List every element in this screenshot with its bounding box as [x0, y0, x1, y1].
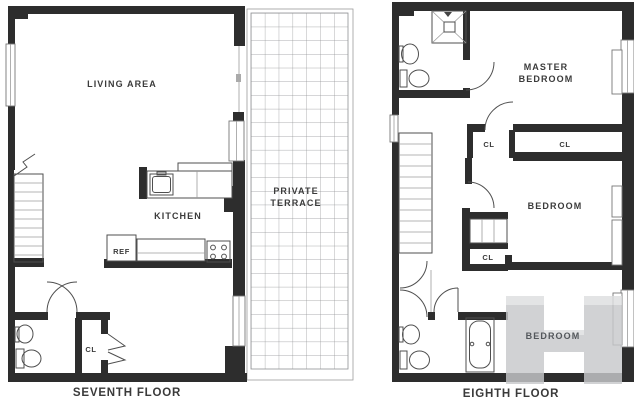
closet-label: CL: [559, 140, 570, 149]
stove: [207, 241, 230, 262]
eighth-floor-staircase: [399, 133, 432, 317]
toilet-fixture: [400, 351, 407, 369]
door-arc: [400, 261, 427, 288]
door-arc: [400, 290, 427, 317]
kitchen-label: KITCHEN: [154, 211, 202, 221]
seventh-floor-bathroom: [15, 325, 41, 368]
door-arc: [485, 102, 513, 130]
seventh-floor-plan: LIVING AREA KITCHEN REF CL PRIVATE TERRA…: [6, 6, 353, 399]
bedroom-label: BEDROOM: [528, 201, 583, 211]
closet-label: CL: [85, 345, 96, 354]
window-sill: [612, 50, 622, 94]
tub-tap: [470, 342, 474, 346]
shower-drain: [444, 22, 455, 32]
window-sill: [612, 220, 622, 265]
sink-fixture: [403, 325, 420, 344]
closet-label: CL: [483, 140, 494, 149]
toilet-fixture: [410, 351, 430, 369]
seventh-floor-staircase: [14, 154, 43, 262]
tub-tap: [486, 342, 490, 346]
door-handle: [236, 74, 241, 82]
closet-bifold-doors: [108, 334, 125, 364]
stair-break-line: [14, 154, 35, 176]
shelf-unit: [470, 219, 507, 243]
door-arc: [466, 62, 494, 90]
kitchen-counter: [137, 239, 205, 261]
door-arc: [434, 288, 458, 312]
burner: [222, 254, 227, 259]
burner: [211, 254, 216, 259]
entry-door-arcs: [47, 282, 77, 312]
window-sill: [612, 186, 622, 217]
master-bedroom-label-line1: MASTER: [524, 62, 569, 72]
floor-plan-image: LIVING AREA KITCHEN REF CL PRIVATE TERRA…: [0, 0, 634, 400]
door-arc: [468, 182, 494, 208]
eighth-floor-plan: MASTER BEDROOM CL CL BEDROOM CL BEDROOM …: [390, 2, 634, 400]
floor-plan-svg: LIVING AREA KITCHEN REF CL PRIVATE TERRA…: [0, 0, 634, 400]
closet-label: CL: [482, 253, 493, 262]
eighth-floor-bottom-bathroom: [399, 288, 494, 372]
terrace-label-line1: PRIVATE: [273, 186, 318, 196]
bathtub-fixture: [470, 321, 491, 368]
eighth-floor-doors: [468, 102, 513, 208]
kitchen-counter: [178, 163, 232, 171]
lower-bedroom-label: BEDROOM: [526, 331, 581, 341]
living-area-label: LIVING AREA: [87, 79, 157, 89]
burner: [211, 245, 216, 250]
refrigerator-label: REF: [113, 247, 130, 256]
toilet-fixture: [400, 70, 407, 87]
terrace-label-line2: TERRACE: [270, 198, 321, 208]
seventh-floor-caption: SEVENTH FLOOR: [73, 387, 181, 399]
toilet-fixture: [22, 350, 41, 367]
hall-closets: [470, 219, 507, 243]
eighth-floor-top-bathroom: [399, 11, 494, 90]
toilet-fixture: [409, 70, 429, 87]
burner: [222, 245, 227, 250]
shower-head: [444, 12, 452, 17]
master-bedroom-label-line2: BEDROOM: [519, 74, 574, 84]
eighth-floor-caption: EIGHTH FLOOR: [463, 388, 559, 400]
sink-fixture: [402, 44, 419, 64]
toilet-fixture: [16, 349, 24, 368]
